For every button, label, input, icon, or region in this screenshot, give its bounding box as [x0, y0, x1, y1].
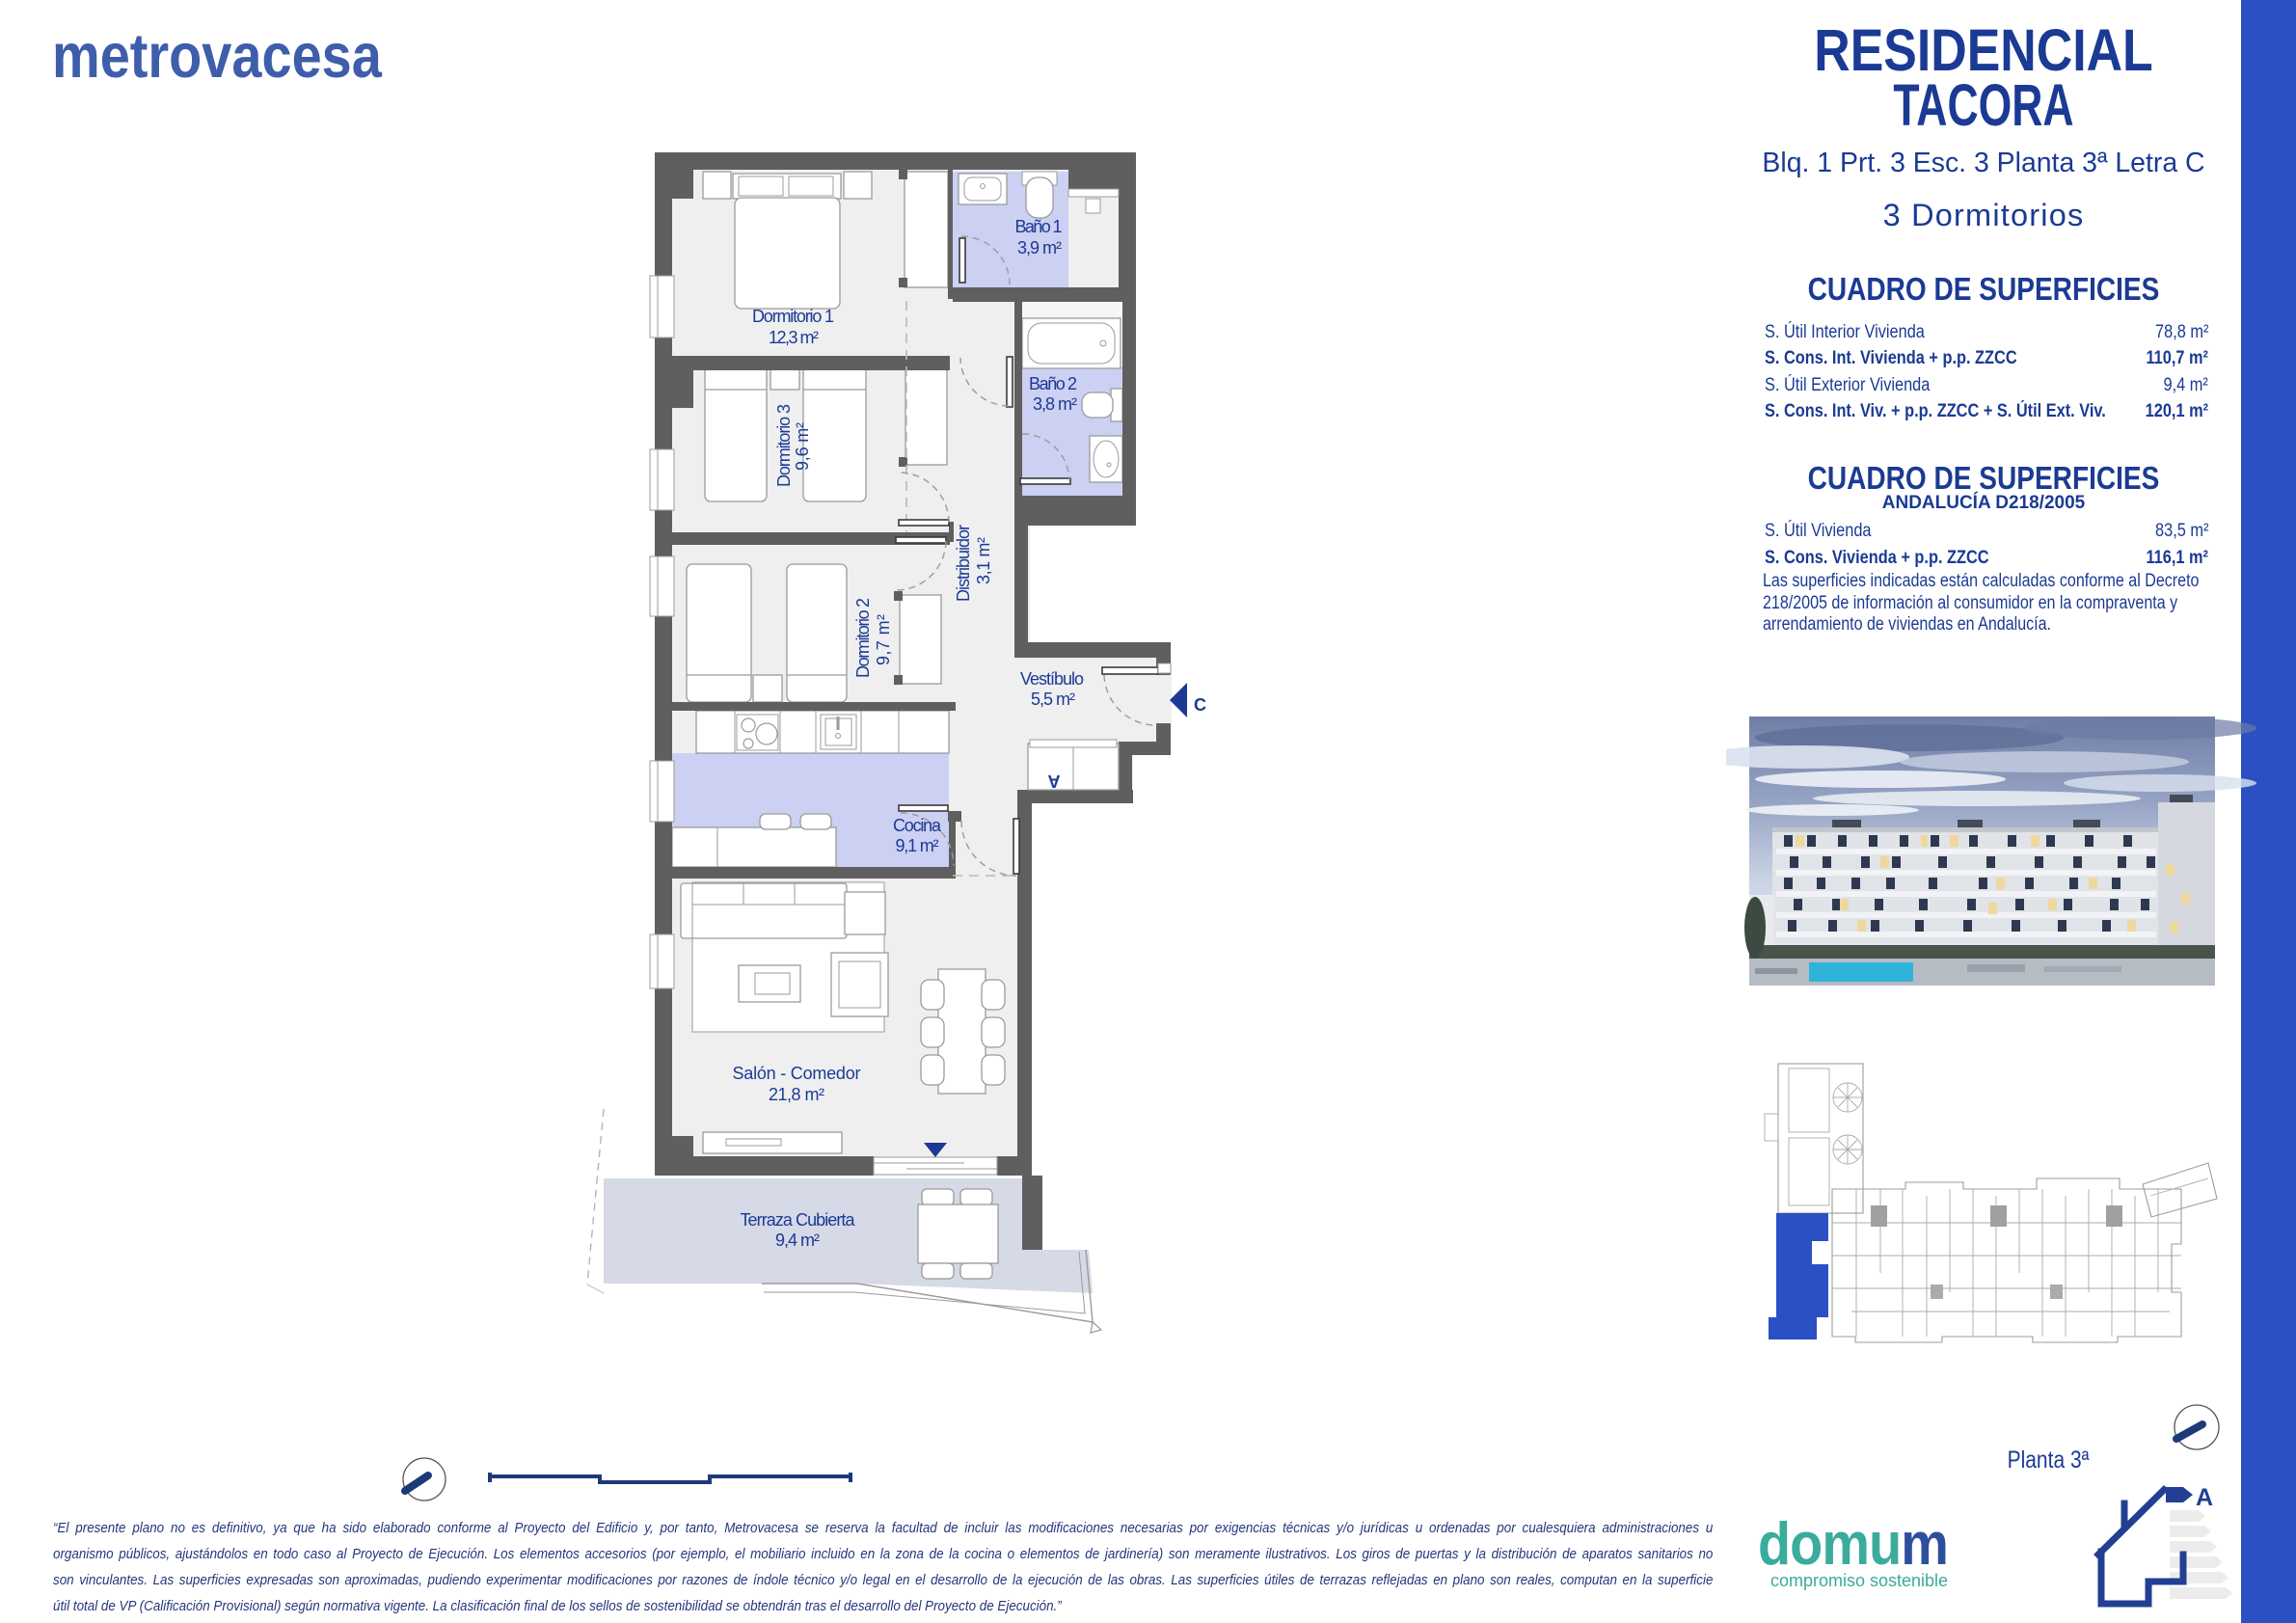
svg-text:Cocina: Cocina: [893, 816, 942, 835]
svg-text:Baño 2: Baño 2: [1029, 374, 1077, 393]
svg-text:Dormitorio 1: Dormitorio 1: [752, 307, 834, 326]
svg-text:Salón - Comedor: Salón - Comedor: [733, 1064, 861, 1083]
svg-text:9,4 m²: 9,4 m²: [775, 1231, 820, 1250]
svg-text:Dormitorio 2: Dormitorio 2: [853, 598, 873, 678]
svg-text:12,3 m²: 12,3 m²: [769, 328, 819, 347]
svg-text:Dormitorio 3: Dormitorio 3: [774, 404, 794, 487]
svg-text:A: A: [2196, 1484, 2213, 1511]
svg-text:9,1 m²: 9,1 m²: [896, 836, 939, 855]
svg-text:C: C: [1194, 695, 1206, 715]
svg-text:Distribuidor: Distribuidor: [954, 525, 973, 602]
svg-text:Vestíbulo: Vestíbulo: [1020, 669, 1084, 689]
svg-text:3,1 m²: 3,1 m²: [974, 537, 993, 584]
svg-text:3,8 m²: 3,8 m²: [1033, 394, 1077, 414]
svg-text:3,9 m²: 3,9 m²: [1017, 238, 1062, 257]
svg-text:9,6 m²: 9,6 m²: [793, 422, 812, 471]
svg-text:21,8 m²: 21,8 m²: [769, 1085, 824, 1104]
svg-text:Terraza Cubierta: Terraza Cubierta: [741, 1210, 856, 1230]
svg-text:9,7 m²: 9,7 m²: [874, 614, 893, 665]
svg-text:5,5 m²: 5,5 m²: [1031, 690, 1075, 709]
svg-text:Baño 1: Baño 1: [1015, 217, 1063, 236]
svg-text:A: A: [1048, 771, 1061, 791]
